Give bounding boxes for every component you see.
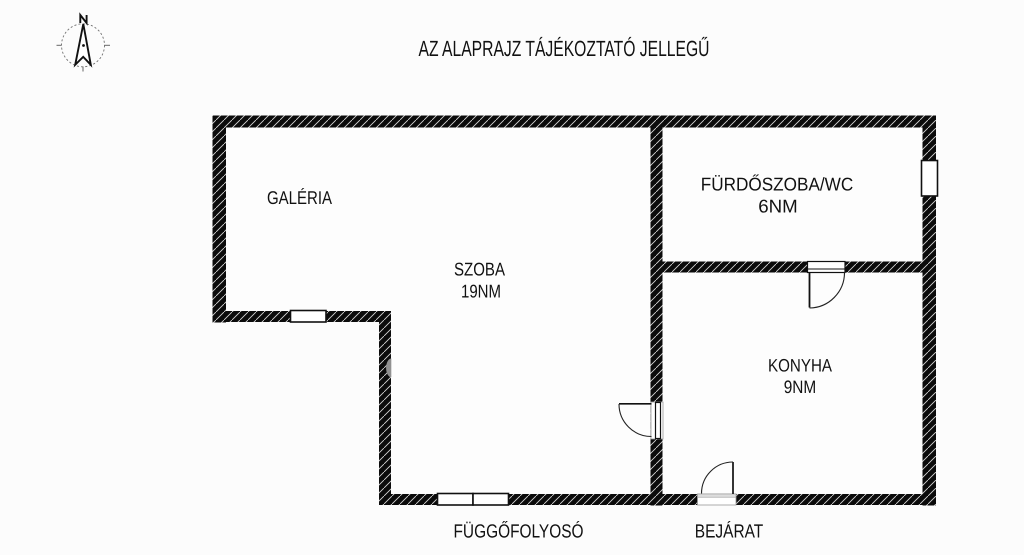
- svg-text:6NM: 6NM: [758, 196, 798, 217]
- svg-text:19NM: 19NM: [461, 281, 501, 302]
- svg-text:BEJÁRAT: BEJÁRAT: [695, 521, 764, 543]
- svg-text:KONYHA: KONYHA: [768, 355, 832, 375]
- svg-text:AZ ALAPRAJZ TÁJÉKOZTATÓ JELLEG: AZ ALAPRAJZ TÁJÉKOZTATÓ JELLEGŰ: [419, 36, 710, 61]
- svg-text:9NM: 9NM: [784, 377, 817, 397]
- svg-text:FÜGGŐFOLYOSÓ: FÜGGŐFOLYOSÓ: [454, 521, 584, 543]
- svg-text:SZOBA: SZOBA: [454, 259, 506, 280]
- svg-text:FÜRDŐSZOBA/WC: FÜRDŐSZOBA/WC: [701, 174, 854, 195]
- svg-text:GALÉRIA: GALÉRIA: [267, 187, 333, 208]
